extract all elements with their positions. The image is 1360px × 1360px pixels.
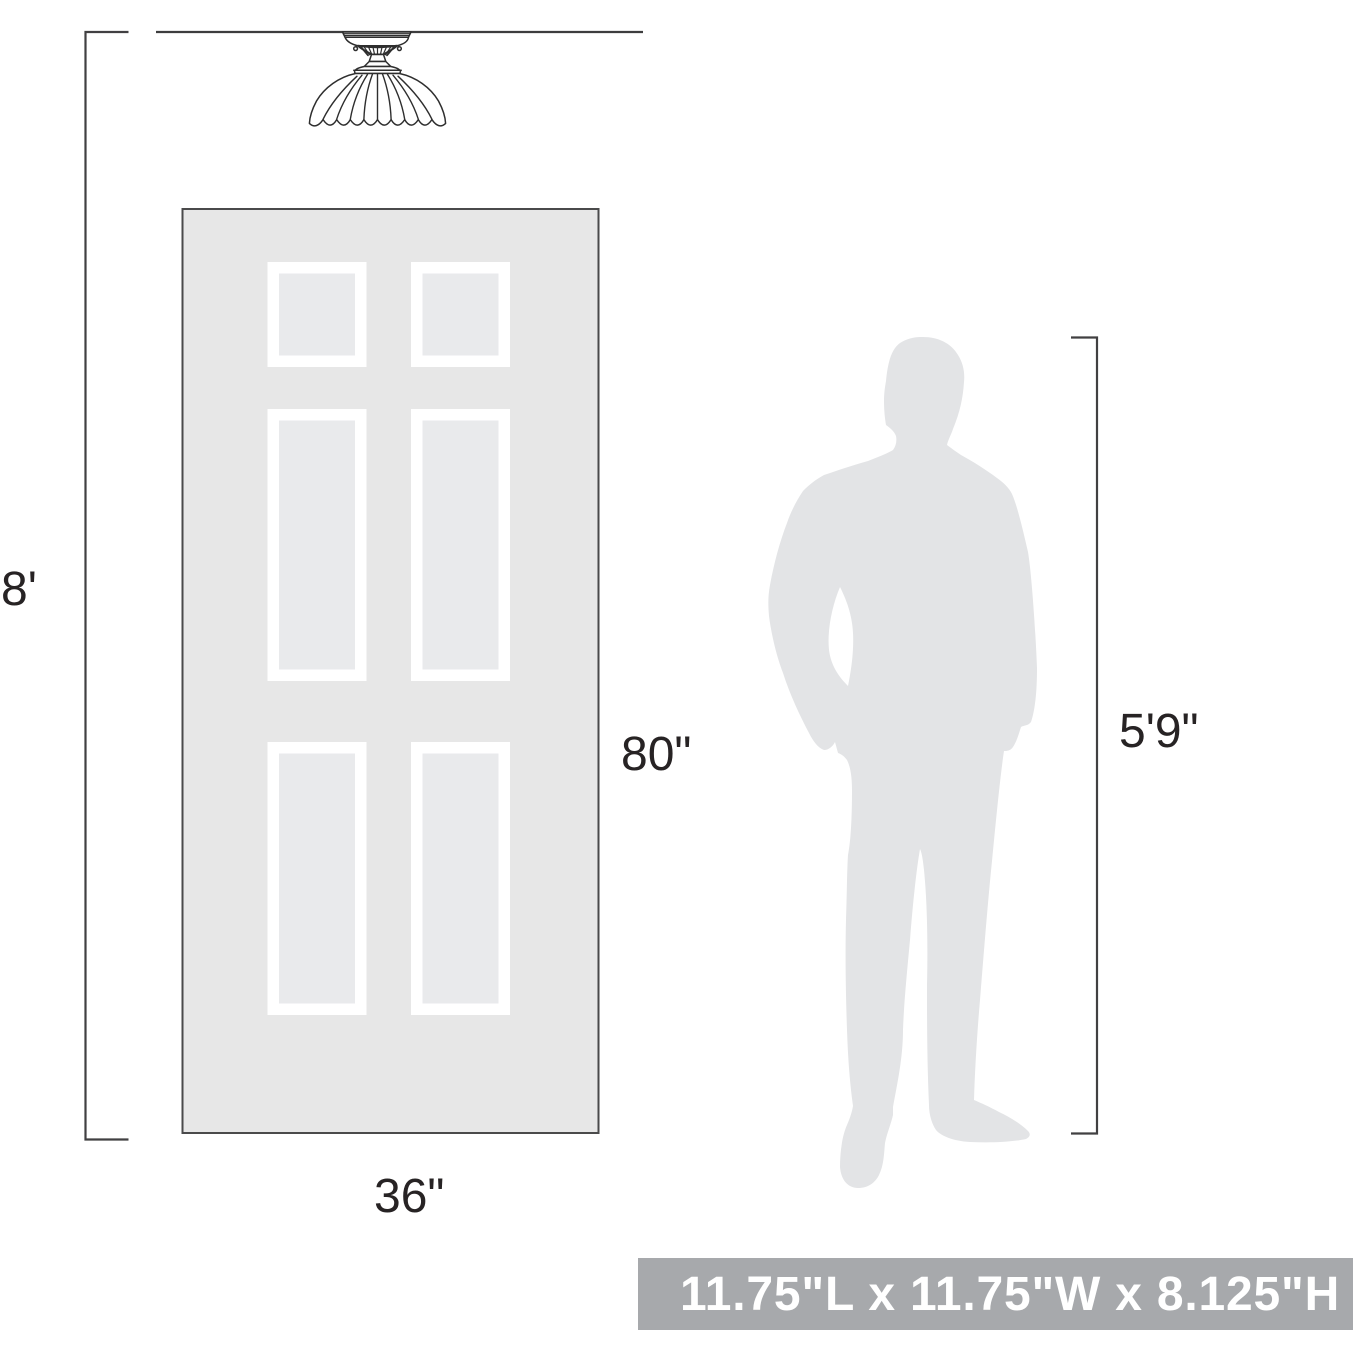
svg-text:36": 36"	[374, 1170, 444, 1223]
svg-text:5'9": 5'9"	[1119, 705, 1199, 758]
svg-text:11.75"L x 11.75"W x 8.125"H: 11.75"L x 11.75"W x 8.125"H	[680, 1268, 1340, 1321]
svg-text:80": 80"	[621, 728, 691, 781]
svg-text:8': 8'	[1, 563, 37, 616]
